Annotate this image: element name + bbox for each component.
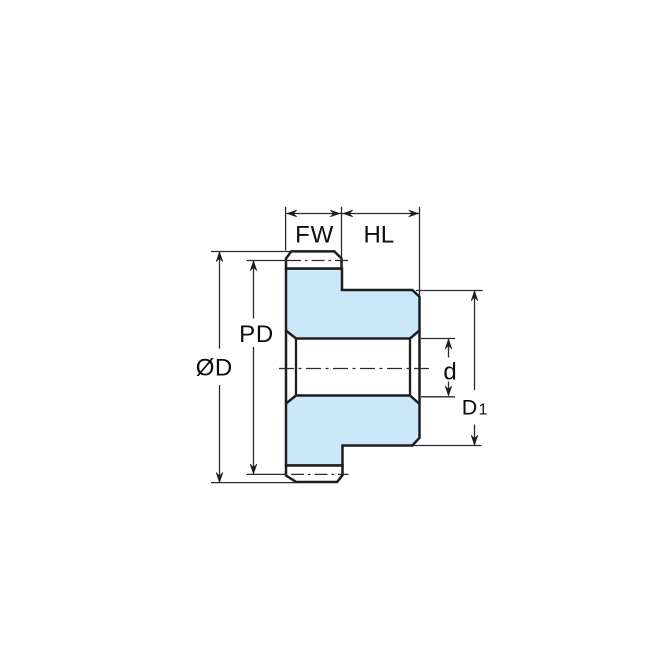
svg-text:FW: FW [295, 221, 334, 248]
svg-text:PD: PD [239, 321, 274, 348]
svg-text:d: d [443, 359, 456, 386]
svg-text:ØD: ØD [196, 355, 233, 382]
svg-text:HL: HL [363, 221, 394, 248]
